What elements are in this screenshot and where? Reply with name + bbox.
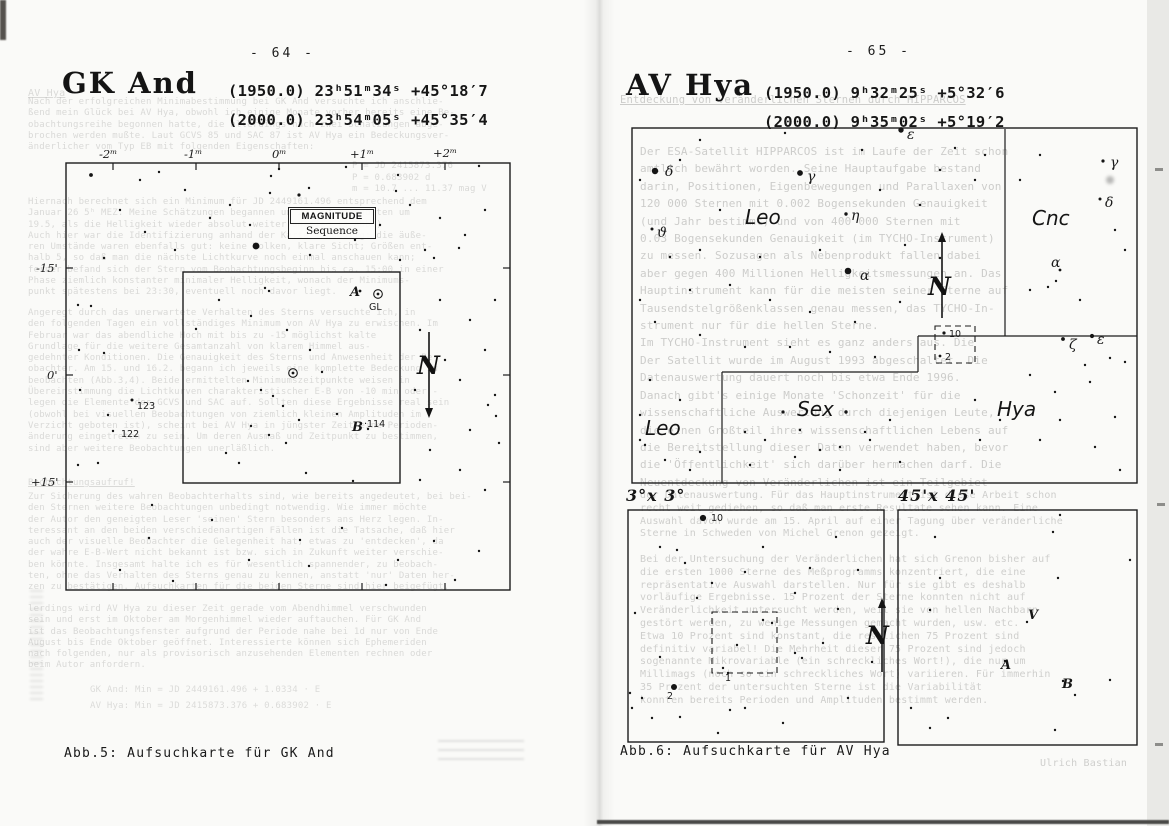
chart-label: V — [1028, 608, 1040, 623]
star-dot — [809, 311, 811, 313]
star-dot — [478, 550, 480, 552]
star-dot — [309, 254, 311, 256]
circled-star-center — [377, 293, 380, 296]
star-dot — [1094, 446, 1096, 448]
star-dot — [247, 380, 249, 382]
star-dot — [464, 234, 466, 236]
star-dot — [699, 334, 701, 336]
star-dot — [744, 571, 746, 573]
star-dot — [131, 399, 134, 402]
page-number-right: - 65 - — [846, 44, 911, 59]
star-dot — [238, 462, 240, 464]
star-dot — [676, 549, 678, 551]
star-dot — [419, 329, 421, 331]
star-dot — [839, 446, 841, 448]
star-dot — [684, 562, 686, 564]
star-dot — [871, 661, 873, 663]
star-dot — [469, 429, 471, 431]
chart-label: +2ᵐ — [433, 146, 457, 160]
star-dot — [151, 504, 153, 506]
star-dot — [984, 154, 986, 156]
caption-figure-5: Abb.5: Aufsuchkarte für GK And — [64, 746, 335, 761]
star-dot — [77, 464, 79, 466]
star-dot — [651, 228, 654, 231]
north-arrow-head — [878, 598, 886, 608]
star-dot — [819, 449, 821, 451]
star-dot — [644, 444, 646, 446]
star-dot — [260, 389, 262, 391]
star-dot — [934, 536, 936, 538]
star-dot — [395, 190, 397, 192]
star-dot — [248, 559, 250, 561]
star-dot — [1129, 559, 1131, 561]
chart-label: 0' — [47, 368, 57, 382]
star-dot — [979, 439, 981, 441]
star-dot — [889, 419, 891, 421]
star-dot — [195, 328, 197, 330]
coords-1950-av-hya: (1950.0) 9ʰ32ᵐ25ˢ +5°32′6 — [764, 84, 1005, 102]
star-dot — [298, 419, 300, 421]
page-number-left: - 64 - — [250, 46, 315, 61]
chart-label: 123 — [137, 401, 155, 412]
star-dot — [711, 582, 713, 584]
chart-label: A — [348, 285, 360, 300]
star-dot — [264, 287, 266, 289]
star-dot — [211, 519, 213, 521]
star-dot — [308, 565, 310, 567]
star-dot — [1124, 249, 1126, 251]
star-dot — [947, 717, 949, 719]
star-dot — [1114, 229, 1116, 231]
star-dot — [782, 722, 784, 724]
chart-label: N — [865, 621, 890, 650]
star-dot — [929, 609, 931, 611]
star-dot — [119, 569, 121, 571]
star-dot — [494, 394, 496, 396]
star-dot — [784, 132, 786, 134]
star-dot — [249, 224, 251, 226]
star-dot — [209, 217, 211, 219]
star-dot — [634, 612, 636, 614]
star-dot — [835, 536, 837, 538]
star-dot — [458, 247, 460, 249]
star-dot — [719, 209, 721, 211]
star-dot — [250, 315, 252, 317]
chart-label: B — [1061, 677, 1073, 692]
star-dot — [218, 299, 220, 301]
star-dot — [253, 243, 260, 250]
chart-label: η — [851, 208, 860, 224]
chart-label: ·114 — [364, 419, 385, 430]
star-dot — [679, 399, 681, 401]
chart-label: Hya — [997, 397, 1036, 421]
star-dot — [336, 413, 338, 415]
scanned-spread: - 64 - GK And (1950.0) 23ʰ51ᵐ34ˢ +45°18′… — [0, 0, 1169, 826]
star-dot — [397, 174, 399, 176]
star-dot — [345, 166, 347, 168]
star-dot — [1029, 374, 1031, 376]
star-dot — [699, 451, 701, 453]
star-dot — [495, 415, 497, 417]
star-dot — [861, 149, 863, 151]
star-dot — [929, 727, 931, 729]
star-dot — [629, 692, 631, 694]
chart-label: γ — [807, 169, 816, 185]
chart-label: A — [999, 658, 1011, 673]
star-dot — [352, 480, 354, 482]
star-dot — [433, 257, 435, 259]
star-dot — [794, 456, 796, 458]
star-dot — [1029, 289, 1031, 291]
star-dot — [759, 256, 761, 258]
star-dot — [771, 622, 773, 624]
star-dot — [939, 355, 942, 358]
star-dot — [1109, 679, 1111, 681]
star-dot — [269, 192, 271, 194]
star-dot — [184, 189, 186, 191]
star-dot — [270, 175, 272, 177]
chart-label: B — [351, 420, 363, 435]
star-dot — [144, 231, 146, 233]
star-dot — [225, 452, 227, 454]
star-dot — [484, 489, 486, 491]
star-dot — [879, 189, 881, 191]
star-dot — [1109, 357, 1111, 359]
star-dot — [444, 359, 446, 361]
star-dot — [699, 249, 701, 251]
star-dot — [789, 346, 791, 348]
north-arrow-head — [425, 408, 433, 418]
star-dot — [112, 430, 114, 432]
star-dot — [484, 349, 486, 351]
star-dot — [172, 580, 174, 582]
star-dot — [744, 346, 746, 348]
magnitude-label: MAGNITUDE — [290, 209, 374, 224]
star-dot — [299, 539, 301, 541]
star-dot — [454, 579, 456, 581]
star-dot — [139, 179, 141, 181]
star-dot — [899, 461, 901, 463]
star-dot — [696, 597, 698, 599]
star-dot — [469, 319, 471, 321]
star-dot — [762, 546, 764, 548]
cluster-smudge — [1106, 176, 1114, 184]
star-dot — [639, 439, 641, 441]
chart-label: -1ᵐ — [184, 147, 202, 161]
star-dot — [409, 204, 411, 206]
star-dot — [1052, 531, 1054, 533]
star-dot — [659, 656, 661, 658]
star-dot — [297, 193, 300, 196]
star-dot — [341, 527, 343, 529]
chart-label: ζ — [1069, 337, 1078, 353]
chart-label: ϑ — [657, 225, 667, 241]
star-dot — [910, 707, 912, 709]
field-outline-dashed — [712, 612, 777, 673]
chart-label: +1ᵐ — [350, 147, 374, 161]
star-dot — [942, 331, 945, 334]
star-dot — [268, 434, 270, 436]
star-dot — [762, 619, 764, 621]
star-dot — [764, 439, 766, 441]
star-dot — [1054, 391, 1056, 393]
star-dot — [487, 404, 489, 406]
star-dot — [250, 425, 252, 427]
star-dot — [158, 171, 160, 173]
chart-label: 122 — [121, 429, 139, 440]
star-dot — [282, 405, 284, 407]
star-dot — [268, 290, 270, 292]
chart-label: 10 — [711, 513, 723, 524]
chart-label: α — [860, 268, 870, 284]
star-dot — [1089, 381, 1091, 383]
star-dot — [939, 577, 941, 579]
star-dot — [379, 224, 381, 226]
chart-label: 10 — [949, 329, 961, 340]
star-dot — [641, 697, 643, 699]
star-dot — [97, 462, 99, 464]
chart-label: -2ᵐ — [99, 147, 117, 161]
star-dot — [631, 707, 633, 709]
caption-figure-6: Abb.6: Aufsuchkarte für AV Hya — [620, 744, 891, 759]
star-dot — [794, 652, 796, 654]
coords-1950-gk-and: (1950.0) 23ʰ51ᵐ34ˢ +45°18′7 — [228, 82, 488, 100]
star-dot — [639, 299, 641, 301]
star-dot — [90, 305, 92, 307]
star-dot — [794, 592, 796, 594]
star-dot — [844, 410, 847, 413]
star-dot — [484, 209, 486, 211]
star-dot — [736, 644, 738, 646]
star-dot — [459, 469, 461, 471]
star-dot — [414, 389, 416, 391]
chart-frame — [632, 128, 1137, 483]
star-dot — [809, 567, 811, 569]
chart-label: GL — [369, 302, 382, 313]
chart-label: Cnc — [1032, 206, 1070, 230]
star-dot — [285, 442, 287, 444]
chart-label: δ — [1105, 195, 1113, 211]
star-dot — [272, 395, 274, 397]
star-dot — [1039, 439, 1041, 441]
star-dot — [939, 169, 941, 171]
star-dot — [354, 239, 356, 241]
chart-label: N — [927, 272, 952, 301]
star-dot — [919, 204, 921, 206]
star-dot — [439, 299, 441, 301]
star-dot — [1019, 179, 1021, 181]
star-dot — [305, 472, 307, 474]
star-dot — [649, 379, 651, 381]
star-title-av-hya: AV Hya — [626, 68, 754, 102]
chart-label: 1 — [725, 673, 731, 684]
star-dot — [744, 707, 746, 709]
chart-label: 2 — [945, 352, 951, 363]
sequence-label: Sequence — [290, 224, 374, 237]
star-dot — [286, 329, 288, 331]
star-dot — [419, 479, 421, 481]
star-dot — [1061, 337, 1065, 341]
chart-label: α — [1051, 255, 1061, 271]
star-dot — [819, 249, 821, 251]
star-dot — [1047, 286, 1049, 288]
star-dot — [679, 159, 681, 161]
star-dot — [1114, 416, 1116, 418]
star-dot — [1119, 469, 1121, 471]
chart-label: Leo — [645, 416, 681, 440]
star-dot — [699, 139, 701, 141]
star-dot — [639, 414, 641, 416]
star-dot — [847, 697, 849, 699]
star-dot — [769, 299, 771, 301]
star-dot — [837, 608, 839, 610]
star-dot — [1054, 729, 1056, 731]
star-dot — [1055, 280, 1057, 282]
star-dot — [397, 559, 399, 561]
star-dot — [494, 299, 496, 301]
star-dot — [399, 259, 401, 261]
star-dot — [229, 204, 231, 206]
star-dot — [904, 244, 906, 246]
star-dot — [829, 351, 831, 353]
star-dot — [700, 515, 706, 521]
star-dot — [717, 732, 719, 734]
star-dot — [899, 301, 901, 303]
chart-label: +15' — [31, 475, 58, 489]
star-dot — [799, 429, 801, 431]
chart-label: 2 — [667, 691, 673, 702]
star-dot — [874, 356, 876, 358]
star-dot — [1099, 198, 1102, 201]
star-dot — [659, 546, 661, 548]
star-dot — [801, 657, 803, 659]
star-dot — [278, 168, 280, 170]
star-dot — [424, 249, 426, 251]
star-dot — [1074, 694, 1076, 696]
star-dot — [174, 249, 176, 251]
star-dot — [148, 537, 150, 539]
star-dot — [651, 717, 653, 719]
star-dot — [939, 257, 941, 259]
star-dot — [839, 469, 841, 471]
star-dot — [844, 212, 847, 215]
star-dot — [308, 187, 310, 189]
star-dot — [77, 304, 79, 306]
coords-2000-av-hya: (2000.0) 9ʰ35ᵐ02ˢ +5°19′2 — [764, 113, 1005, 131]
star-dot — [864, 431, 866, 433]
star-dot — [433, 540, 435, 542]
star-dot — [974, 179, 976, 181]
star-dot — [78, 349, 80, 351]
chart-label: Sex — [797, 397, 834, 421]
star-dot — [689, 469, 691, 471]
star-dot — [749, 464, 751, 466]
coords-2000-gk-and: (2000.0) 23ʰ54ᵐ05ˢ +45°35′4 — [228, 111, 488, 129]
star-dot — [797, 170, 803, 176]
star-dot — [1124, 361, 1126, 363]
chart-label: γ — [1110, 155, 1119, 171]
north-arrow-head — [938, 232, 946, 242]
chart-label: ε — [1097, 332, 1105, 348]
star-dot — [781, 410, 784, 413]
star-dot — [1039, 154, 1041, 156]
star-dot — [669, 256, 671, 258]
chart-label: -15' — [36, 261, 58, 275]
magnitude-sequence-box: MAGNITUDE Sequence — [288, 207, 376, 239]
chart-frame — [898, 510, 1137, 745]
star-dot — [689, 289, 691, 291]
star-dot — [974, 399, 976, 401]
star-dot — [869, 439, 871, 441]
star-dot — [671, 684, 677, 690]
star-dot — [654, 321, 656, 323]
chart-frame — [628, 510, 884, 742]
star-dot — [652, 168, 658, 174]
star-dot — [385, 584, 387, 586]
star-dot — [729, 709, 731, 711]
star-dot — [103, 257, 105, 259]
scale-label-45x45arcmin: 45'x 45' — [898, 486, 975, 505]
star-dot — [498, 442, 500, 444]
star-dot — [321, 371, 323, 373]
star-dot — [845, 268, 852, 275]
star-dot — [954, 147, 956, 149]
chart-label: 0ᵐ — [272, 147, 286, 161]
star-dot — [89, 173, 93, 177]
chart-label: δ — [665, 164, 673, 180]
star-title-gk-and: GK And — [62, 66, 198, 100]
star-dot — [1101, 159, 1104, 162]
star-dot — [744, 431, 746, 433]
star-dot — [1059, 514, 1061, 516]
star-dot — [439, 217, 441, 219]
star-dot — [1057, 577, 1059, 579]
star-dot — [103, 352, 105, 354]
star-dot — [1084, 364, 1086, 366]
star-dot — [729, 284, 731, 286]
star-dot — [1090, 334, 1094, 338]
star-dot — [854, 321, 856, 323]
star-dot — [309, 349, 311, 351]
star-dot — [664, 459, 666, 461]
star-dot — [478, 165, 480, 167]
star-dot — [639, 179, 641, 181]
star-dot — [822, 642, 824, 644]
star-dot — [459, 379, 461, 381]
star-dot — [1079, 299, 1081, 301]
circled-star-center — [292, 372, 295, 375]
scale-label-3x3deg: 3°x 3° — [626, 486, 685, 505]
chart-label: Leo — [745, 205, 781, 229]
star-dot — [1059, 419, 1061, 421]
star-dot — [79, 389, 81, 391]
star-dot — [679, 716, 681, 718]
star-dot — [107, 414, 109, 416]
star-dot — [429, 449, 431, 451]
star-dot — [119, 209, 121, 211]
star-dot — [722, 667, 724, 669]
star-dot — [857, 569, 859, 571]
